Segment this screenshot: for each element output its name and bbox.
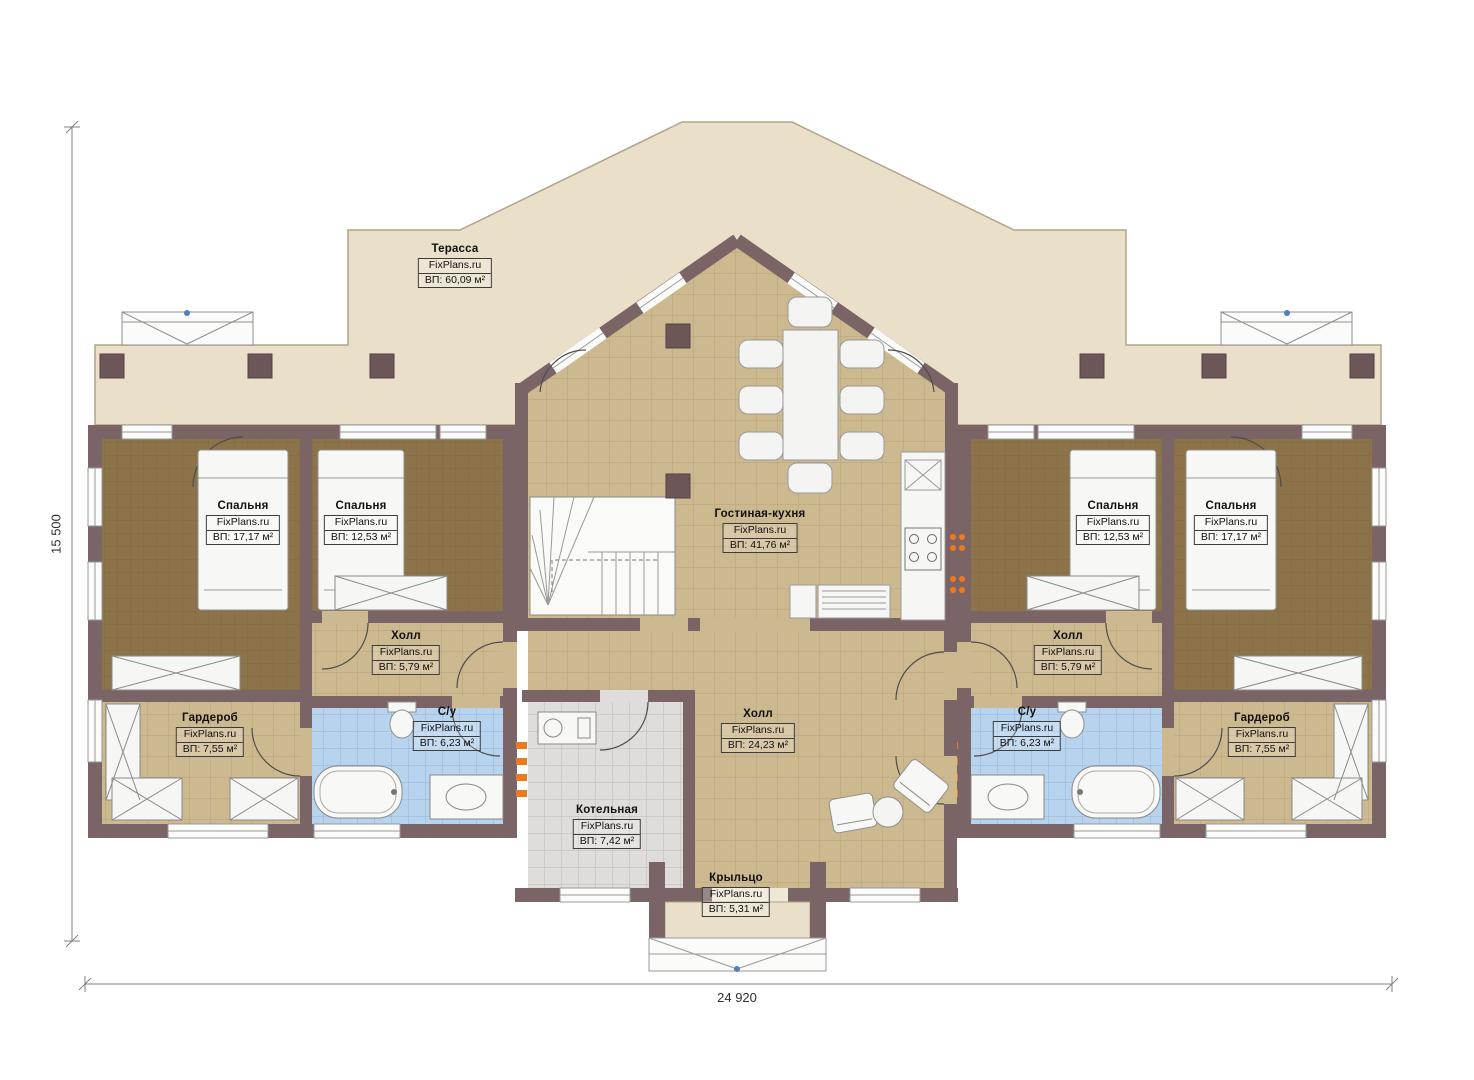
room-name: С/у [413, 706, 481, 719]
brand-text: FixPlans.ru [574, 820, 640, 835]
area-text: ВП: 7,42 м² [574, 835, 640, 849]
room-label-bedroom-left-1: Спальня FixPlans.ru ВП: 17,17 м² [206, 500, 280, 545]
brand-text: FixPlans.ru [994, 722, 1060, 737]
brand-text: FixPlans.ru [722, 724, 794, 739]
room-name: Холл [721, 708, 795, 721]
room-info-box: FixPlans.ru ВП: 7,55 м² [176, 727, 244, 758]
brand-text: FixPlans.ru [177, 728, 243, 743]
floor-plan-page: Терасса FixPlans.ru ВП: 60,09 м² Спальня… [0, 0, 1474, 1080]
room-label-bedroom-left-2: Спальня FixPlans.ru ВП: 12,53 м² [324, 500, 398, 545]
room-label-bathroom-right: С/у FixPlans.ru ВП: 6,23 м² [993, 706, 1061, 751]
area-text: ВП: 7,55 м² [177, 743, 243, 757]
brand-text: FixPlans.ru [414, 722, 480, 737]
room-name: С/у [993, 706, 1061, 719]
room-label-living-kitchen: Гостиная-кухня FixPlans.ru ВП: 41,76 м² [715, 508, 806, 553]
room-label-bathroom-left: С/у FixPlans.ru ВП: 6,23 м² [413, 706, 481, 751]
area-text: ВП: 5,79 м² [373, 661, 439, 675]
room-name: Котельная [573, 804, 641, 817]
room-name: Гардероб [1228, 712, 1296, 725]
room-info-box: FixPlans.ru ВП: 5,79 м² [1034, 645, 1102, 676]
area-text: ВП: 12,53 м² [1077, 531, 1149, 545]
brand-text: FixPlans.ru [419, 259, 491, 274]
room-label-bedroom-right-1: Спальня FixPlans.ru ВП: 12,53 м² [1076, 500, 1150, 545]
room-info-box: FixPlans.ru ВП: 6,23 м² [413, 721, 481, 752]
room-name: Терасса [418, 243, 492, 256]
room-label-terrace: Терасса FixPlans.ru ВП: 60,09 м² [418, 243, 492, 288]
room-info-box: FixPlans.ru ВП: 12,53 м² [1076, 515, 1150, 546]
room-name: Гостиная-кухня [715, 508, 806, 521]
room-name: Спальня [1194, 500, 1268, 513]
area-text: ВП: 6,23 м² [414, 737, 480, 751]
brand-text: FixPlans.ru [1035, 646, 1101, 661]
brand-text: FixPlans.ru [724, 524, 796, 539]
room-label-hall-center: Холл FixPlans.ru ВП: 24,23 м² [721, 708, 795, 753]
area-text: ВП: 17,17 м² [1195, 531, 1267, 545]
room-name: Спальня [324, 500, 398, 513]
room-label-porch: Крыльцо FixPlans.ru ВП: 5,31 м² [702, 872, 770, 917]
room-info-box: FixPlans.ru ВП: 12,53 м² [324, 515, 398, 546]
area-text: ВП: 24,23 м² [722, 739, 794, 753]
area-text: ВП: 12,53 м² [325, 531, 397, 545]
brand-text: FixPlans.ru [1195, 516, 1267, 531]
room-info-box: FixPlans.ru ВП: 24,23 м² [721, 723, 795, 754]
room-name: Спальня [1076, 500, 1150, 513]
room-label-boiler-room: Котельная FixPlans.ru ВП: 7,42 м² [573, 804, 641, 849]
room-info-box: FixPlans.ru ВП: 41,76 м² [723, 523, 797, 554]
area-text: ВП: 17,17 м² [207, 531, 279, 545]
brand-text: FixPlans.ru [1077, 516, 1149, 531]
room-name: Холл [1034, 630, 1102, 643]
brand-text: FixPlans.ru [373, 646, 439, 661]
room-info-box: FixPlans.ru ВП: 6,23 м² [993, 721, 1061, 752]
room-info-box: FixPlans.ru ВП: 17,17 м² [206, 515, 280, 546]
room-info-box: FixPlans.ru ВП: 7,55 м² [1228, 727, 1296, 758]
room-label-hall-left: Холл FixPlans.ru ВП: 5,79 м² [372, 630, 440, 675]
area-text: ВП: 5,31 м² [703, 903, 769, 917]
brand-text: FixPlans.ru [325, 516, 397, 531]
area-text: ВП: 7,55 м² [1229, 743, 1295, 757]
room-label-wardrobe-left: Гардероб FixPlans.ru ВП: 7,55 м² [176, 712, 244, 757]
room-label-wardrobe-right: Гардероб FixPlans.ru ВП: 7,55 м² [1228, 712, 1296, 757]
boiler-room-area [538, 712, 596, 744]
brand-text: FixPlans.ru [207, 516, 279, 531]
room-label-bedroom-right-2: Спальня FixPlans.ru ВП: 17,17 м² [1194, 500, 1268, 545]
room-info-box: FixPlans.ru ВП: 7,42 м² [573, 819, 641, 850]
room-info-box: FixPlans.ru ВП: 5,79 м² [372, 645, 440, 676]
dimension-width-label: 24 920 [717, 990, 757, 1005]
area-text: ВП: 41,76 м² [724, 539, 796, 553]
room-name: Крыльцо [702, 872, 770, 885]
room-info-box: FixPlans.ru ВП: 17,17 м² [1194, 515, 1268, 546]
brand-text: FixPlans.ru [1229, 728, 1295, 743]
room-info-box: FixPlans.ru ВП: 60,09 м² [418, 258, 492, 289]
room-name: Спальня [206, 500, 280, 513]
dimension-height-label: 15 500 [49, 514, 64, 554]
room-name: Холл [372, 630, 440, 643]
room-label-hall-right: Холл FixPlans.ru ВП: 5,79 м² [1034, 630, 1102, 675]
stairs [530, 497, 675, 615]
area-text: ВП: 60,09 м² [419, 274, 491, 288]
area-text: ВП: 5,79 м² [1035, 661, 1101, 675]
room-name: Гардероб [176, 712, 244, 725]
room-info-box: FixPlans.ru ВП: 5,31 м² [702, 887, 770, 918]
brand-text: FixPlans.ru [703, 888, 769, 903]
area-text: ВП: 6,23 м² [994, 737, 1060, 751]
